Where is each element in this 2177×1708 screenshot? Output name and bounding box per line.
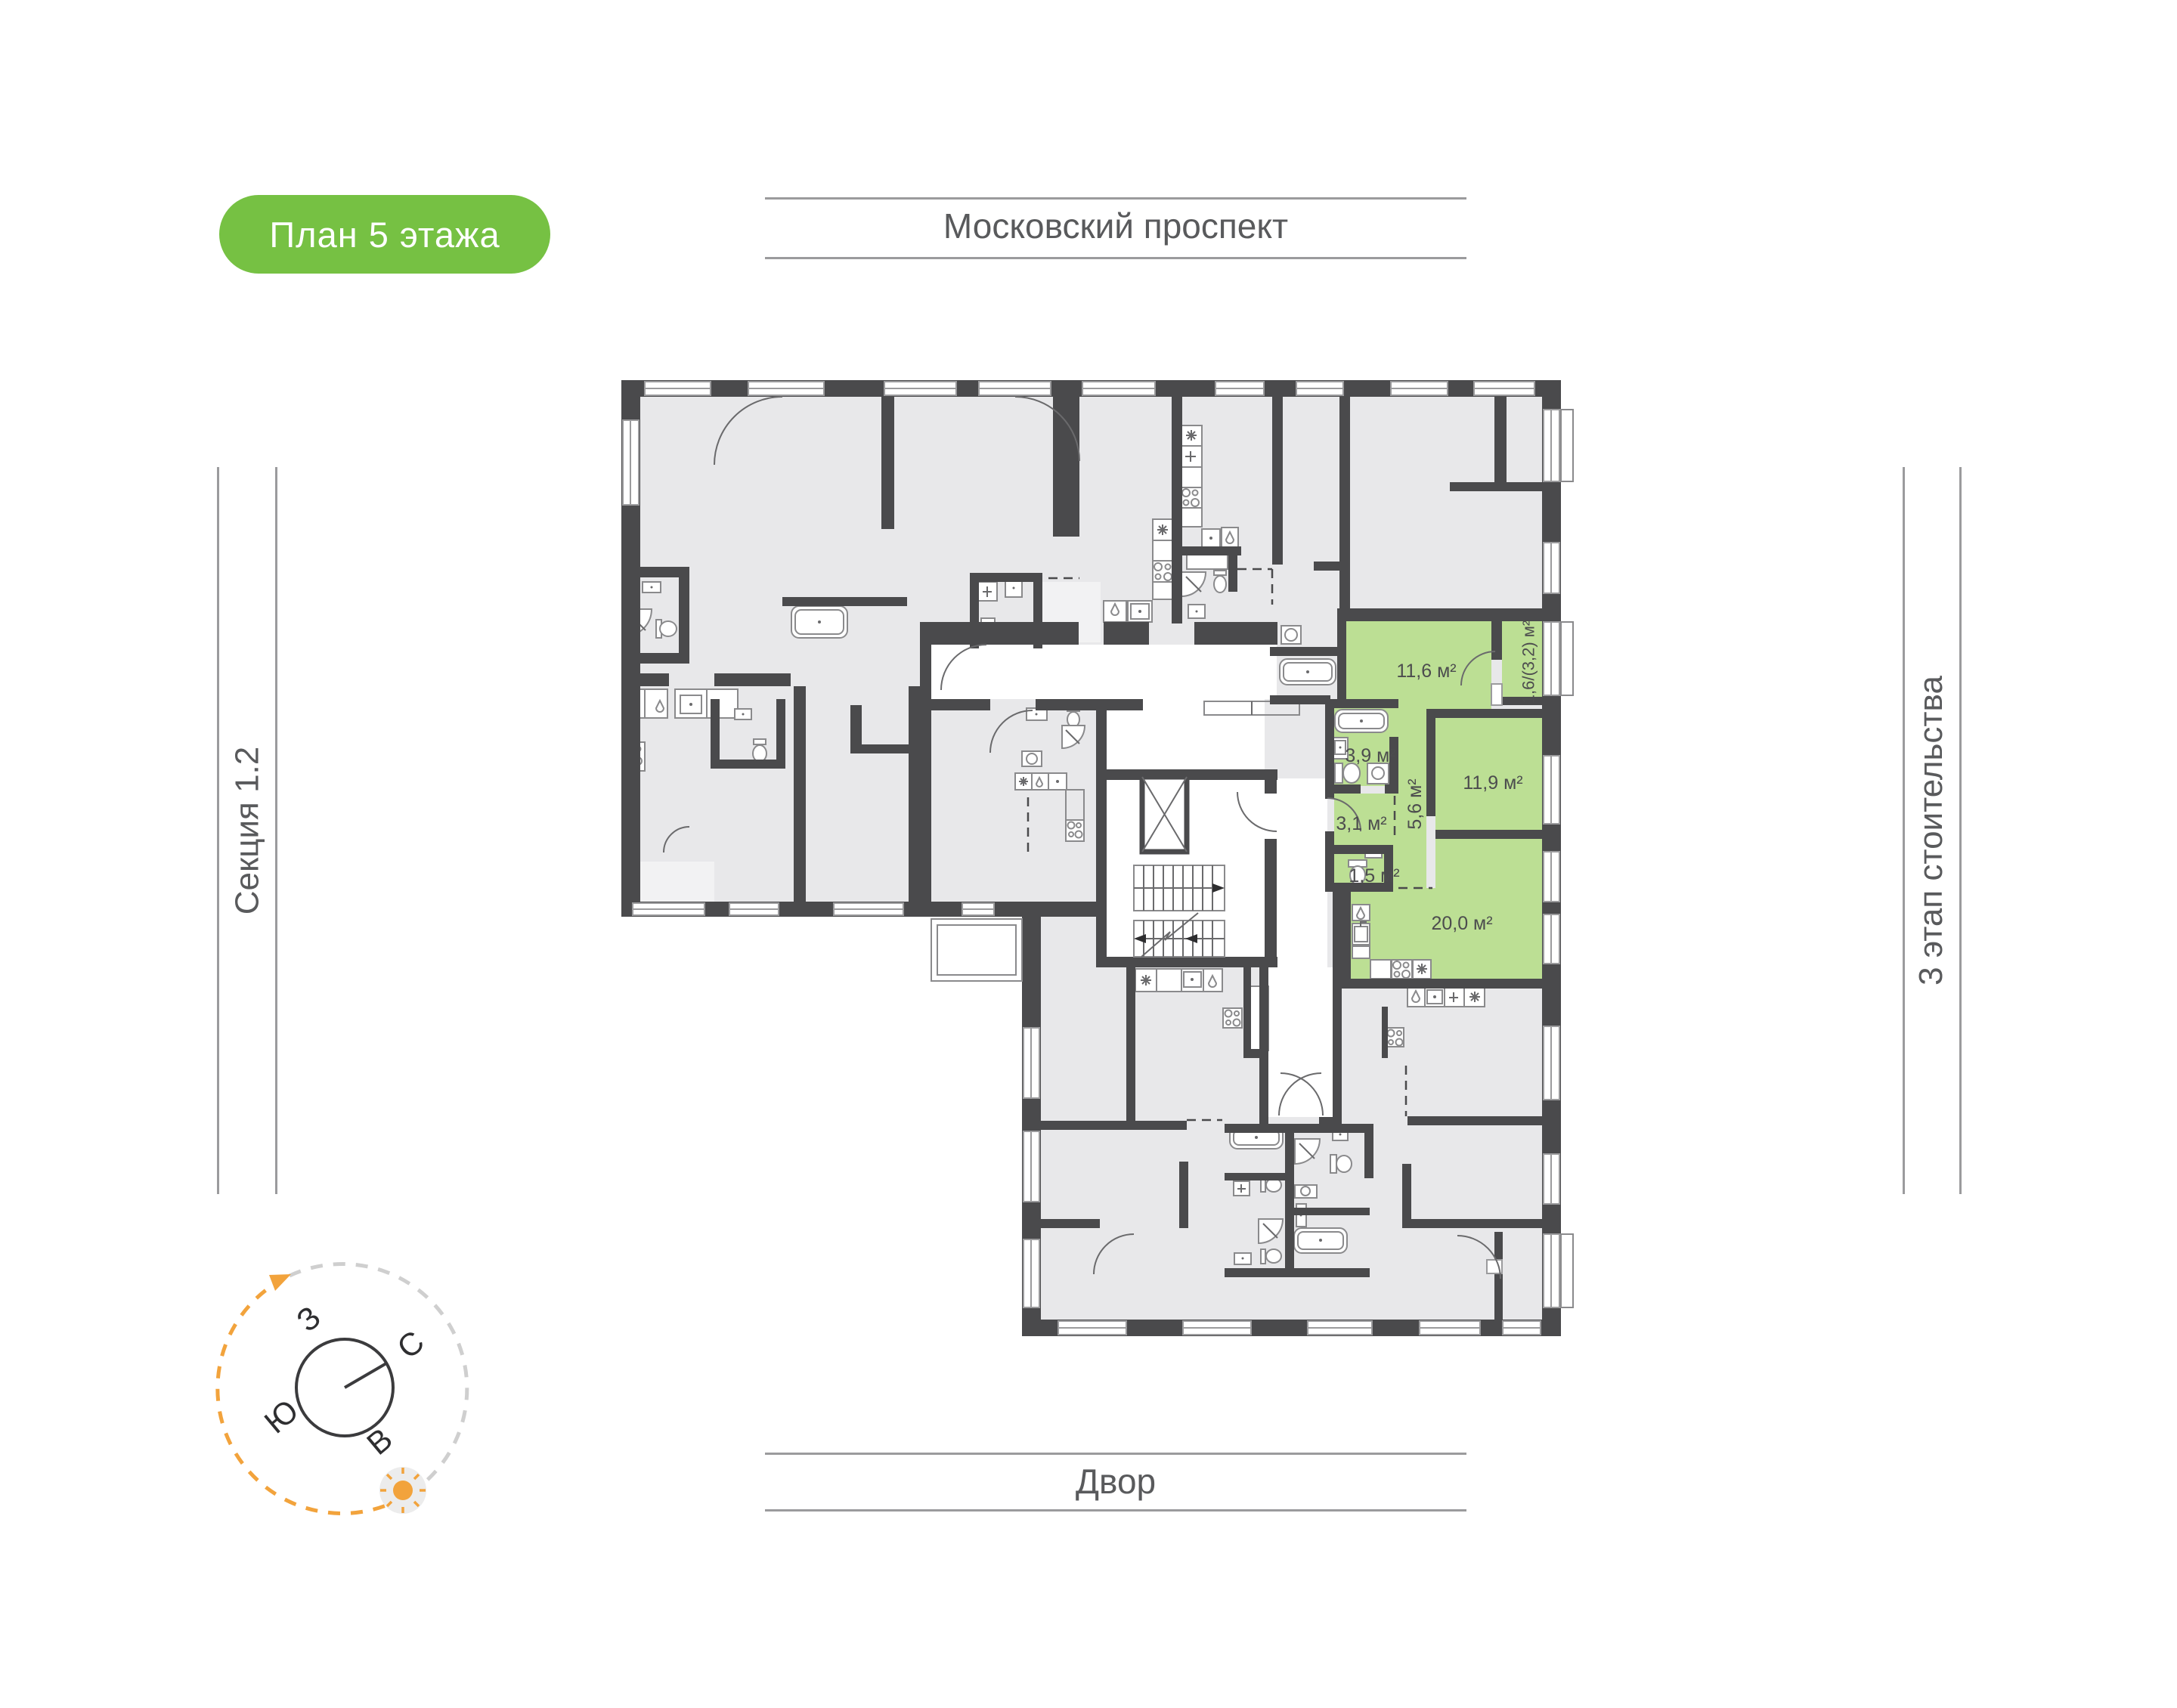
room-area-label-loggia: 1,6/(3,2) м²: [1519, 620, 1538, 704]
floor-plan: 11,6 м² 1,6/(3,2) м² 3,9 м² 11,9 м² 3,1 …: [0, 0, 2177, 1708]
rotation-arrow-icon: [269, 1274, 291, 1291]
compass-west-label: З: [290, 1299, 327, 1338]
room-area-label-bedroom: 11,9 м²: [1463, 772, 1522, 794]
room-area-label-bathroom: 3,9 м²: [1345, 745, 1395, 766]
room-area-label-wc: 1,5 м²: [1349, 865, 1399, 886]
sun-icon: [379, 1467, 426, 1514]
room-area-label-hallway: 11,6 м²: [1396, 661, 1456, 682]
room-area-label-hall: 3,1 м²: [1336, 813, 1386, 834]
room-area-label-kitchen-living: 20,0 м²: [1431, 913, 1492, 934]
compass-north-label: С: [390, 1323, 430, 1366]
page: { "badge": { "label": "План 5 этажа", "b…: [0, 0, 2177, 1708]
room-area-label-corridor: 5,6 м²: [1404, 778, 1426, 829]
compass: З С Ю В: [218, 1264, 467, 1514]
